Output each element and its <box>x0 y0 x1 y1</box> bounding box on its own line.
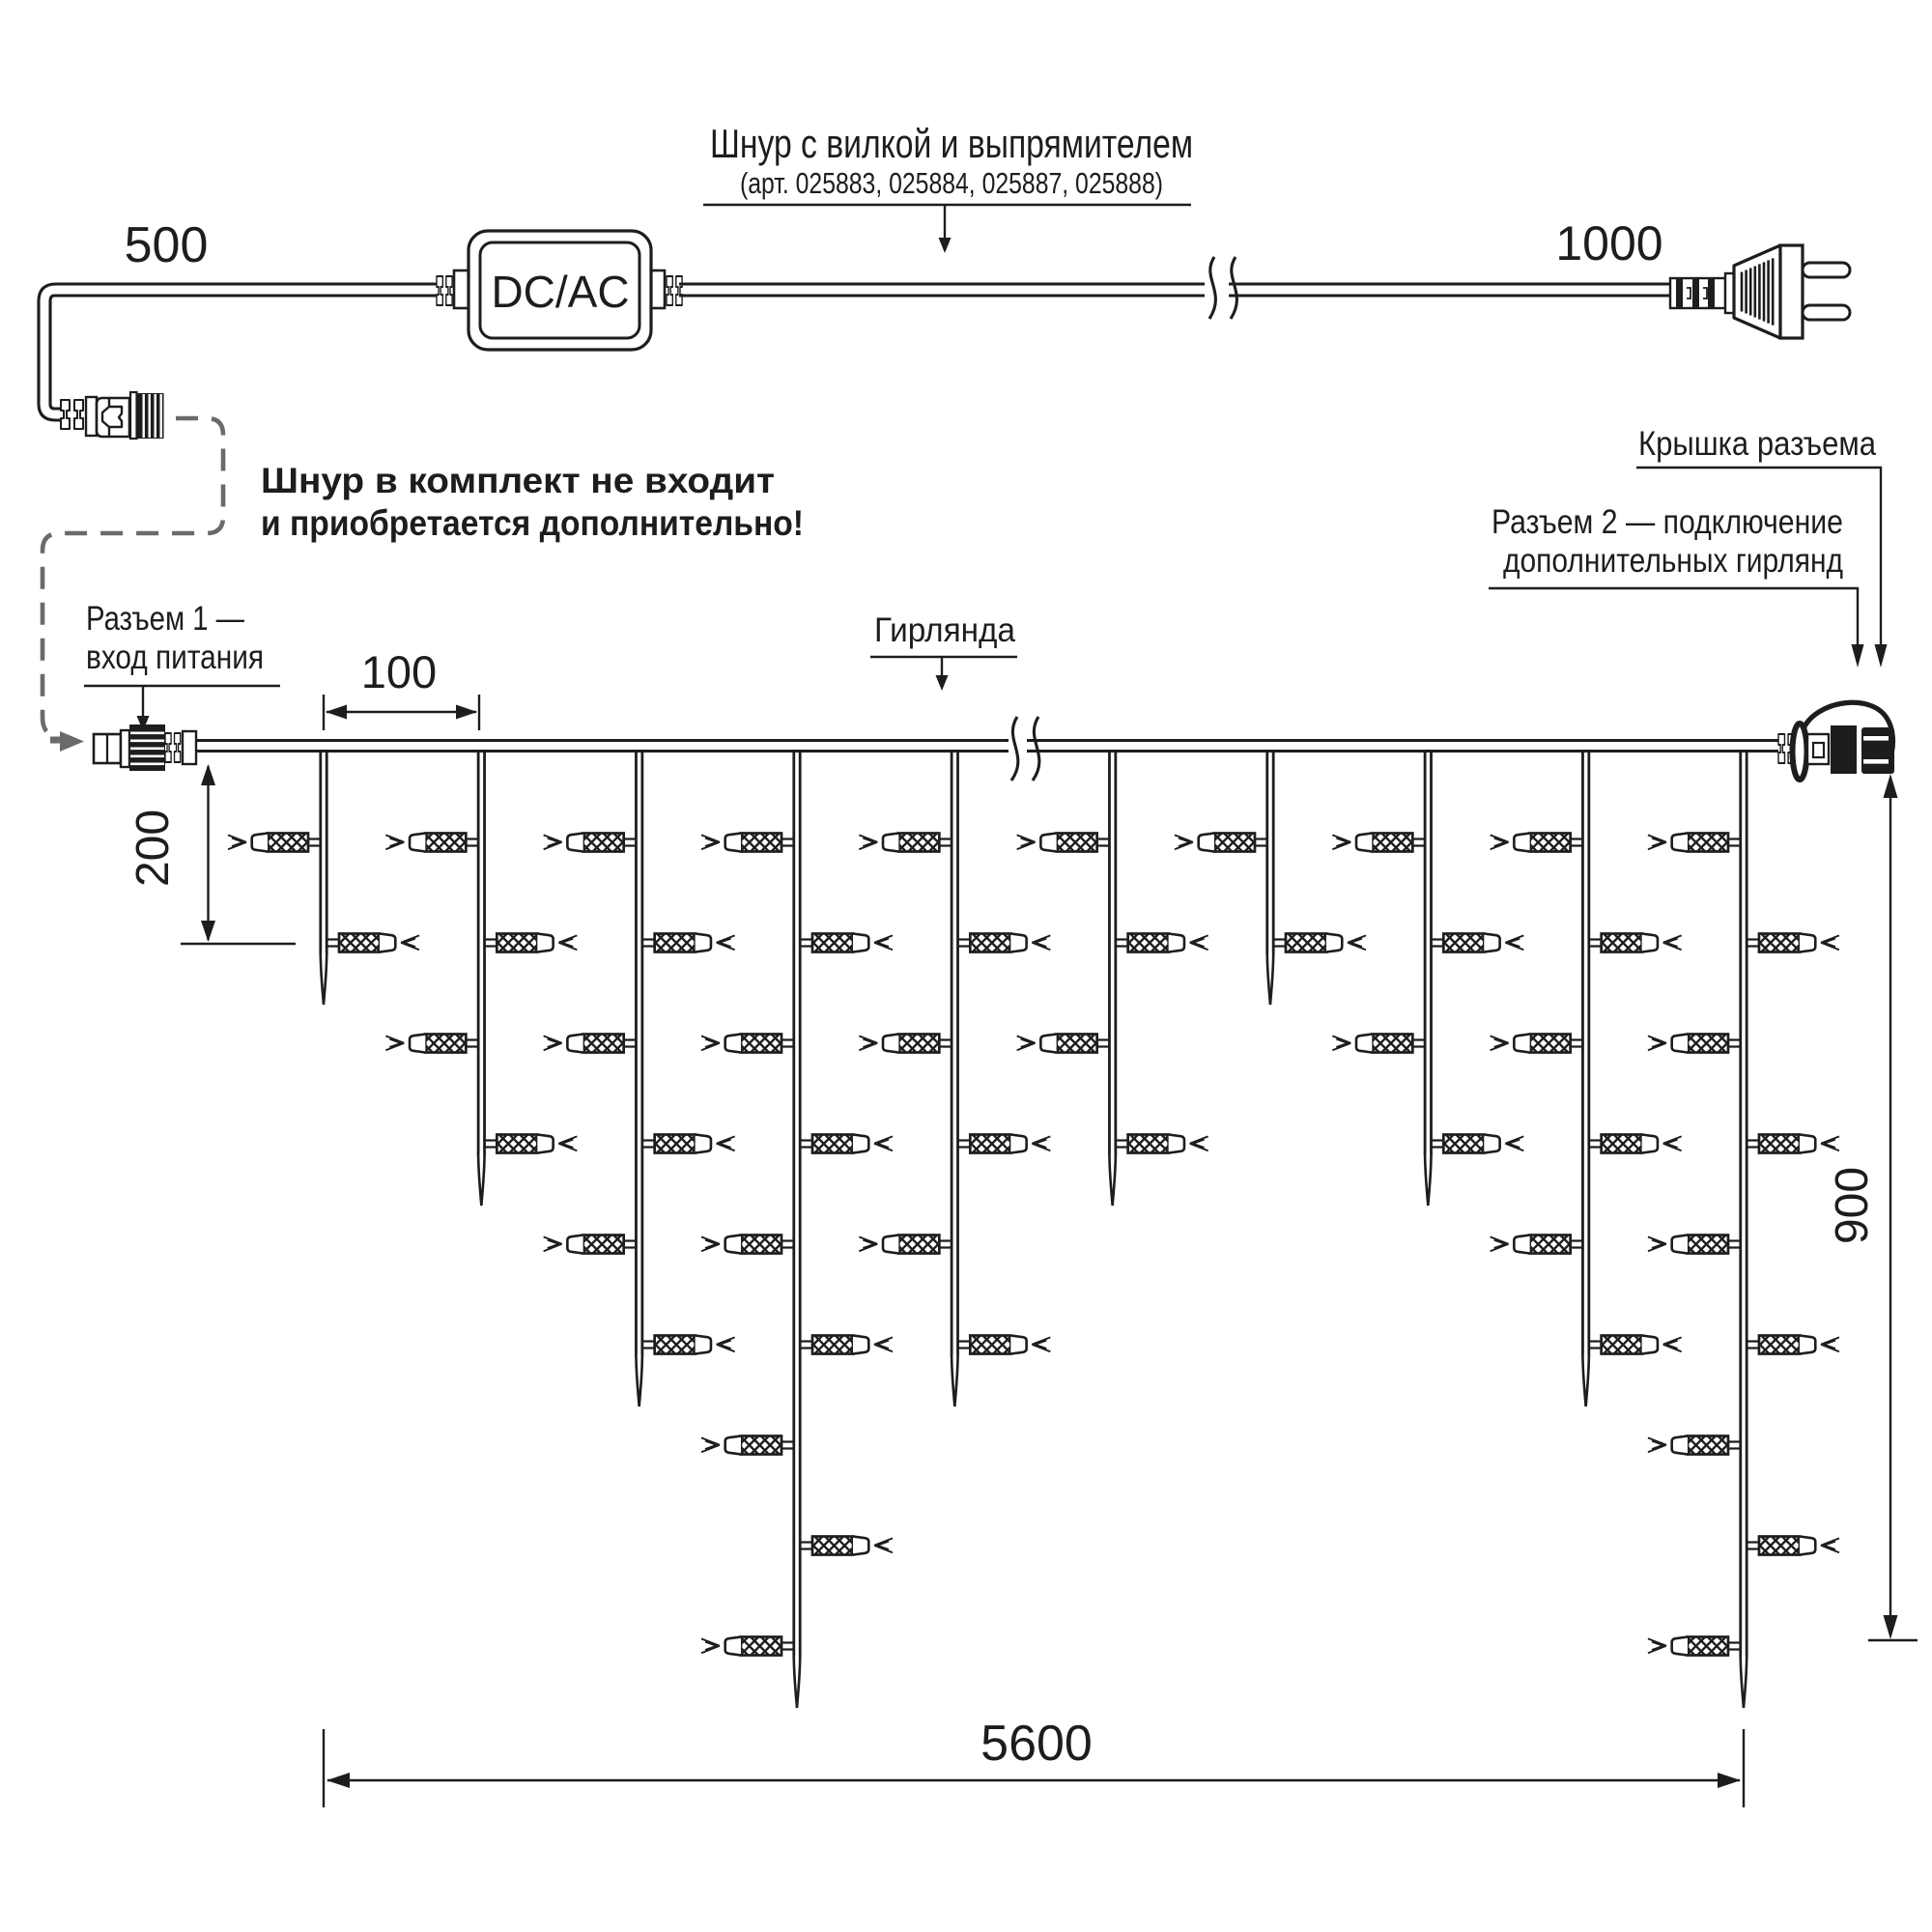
svg-text:Разъем 1 —: Разъем 1 — <box>86 600 244 638</box>
svg-text:200: 200 <box>128 810 179 887</box>
svg-text:дополнительных гирлянд: дополнительных гирлянд <box>1503 542 1843 580</box>
svg-text:и приобретается дополнительно!: и приобретается дополнительно! <box>261 503 804 543</box>
svg-text:(арт. 025883, 025884, 025887,: (арт. 025883, 025884, 025887, 025888) <box>740 166 1163 200</box>
svg-text:900: 900 <box>1827 1167 1878 1244</box>
svg-text:вход питания: вход питания <box>86 639 264 676</box>
svg-text:5600: 5600 <box>980 1716 1093 1772</box>
svg-text:Шнур в комплект не входит: Шнур в комплект не входит <box>261 461 775 500</box>
svg-text:Гирлянда: Гирлянда <box>874 611 1016 649</box>
svg-text:DC/AC: DC/AC <box>491 267 629 317</box>
svg-text:500: 500 <box>125 217 209 273</box>
svg-text:Крышка разъема: Крышка разъема <box>1638 425 1876 463</box>
svg-text:Шнур с вилкой и выпрямителем: Шнур с вилкой и выпрямителем <box>710 121 1193 166</box>
svg-text:Разъем 2 — подключение: Разъем 2 — подключение <box>1492 503 1843 541</box>
svg-text:1000: 1000 <box>1555 216 1662 270</box>
svg-text:100: 100 <box>361 646 437 697</box>
